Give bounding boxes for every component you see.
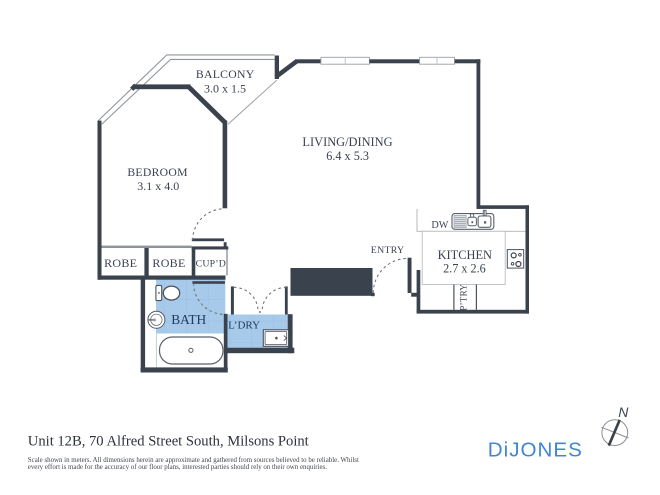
svg-text:LIVING/DINING: LIVING/DINING	[302, 135, 392, 149]
svg-text:Unit 12B, 70 Alfred Street Sou: Unit 12B, 70 Alfred Street South, Milson…	[28, 434, 309, 450]
svg-text:ROBE: ROBE	[104, 256, 137, 270]
svg-text:DW: DW	[431, 220, 448, 231]
svg-text:ENTRY: ENTRY	[371, 245, 405, 256]
svg-text:ROBE: ROBE	[152, 256, 185, 270]
svg-text:3.1 x 4.0: 3.1 x 4.0	[137, 179, 179, 193]
svg-text:KITCHEN: KITCHEN	[438, 248, 492, 262]
svg-text:2.7 x 2.6: 2.7 x 2.6	[443, 261, 486, 275]
svg-text:BATH: BATH	[171, 312, 206, 327]
svg-text:BEDROOM: BEDROOM	[127, 166, 188, 179]
svg-text:P’TRY: P’TRY	[459, 284, 469, 311]
svg-text:N: N	[618, 404, 629, 420]
svg-text:BALCONY: BALCONY	[196, 68, 255, 81]
svg-text:3.0 x 1.5: 3.0 x 1.5	[204, 82, 246, 96]
svg-text:CUP’D: CUP’D	[196, 259, 226, 270]
svg-text:6.4 x 5.3: 6.4 x 5.3	[326, 149, 369, 163]
svg-text:every effort is made for the a: every effort is made for the accuracy of…	[28, 464, 327, 471]
svg-text:DiJONES: DiJONES	[488, 439, 583, 462]
svg-text:L’DRY: L’DRY	[228, 320, 260, 332]
